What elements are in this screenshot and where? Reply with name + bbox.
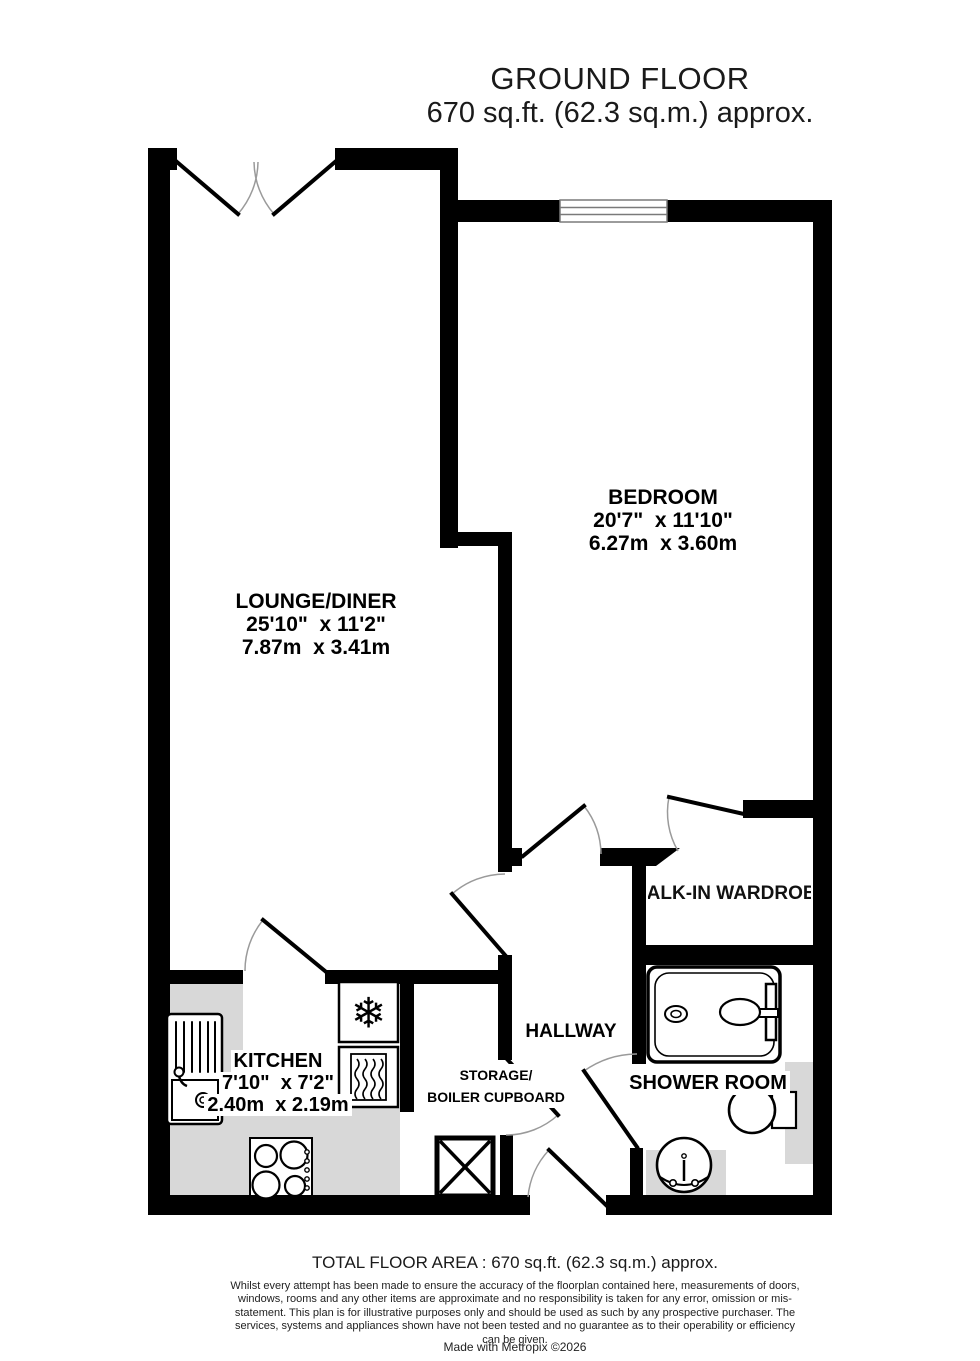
boiler-icon	[437, 1138, 493, 1196]
kitchen-door-leaf	[263, 920, 325, 971]
fridge-icon: ❄	[339, 982, 398, 1042]
total-floor-area: TOTAL FLOOR AREA : 670 sq.ft. (62.3 sq.m…	[175, 1253, 855, 1273]
bedroom-label: BEDROOM 20'7" x 11'10" 6.27m x 3.60m	[513, 486, 813, 555]
wardrobe-door-leaf	[669, 797, 744, 814]
entrance-double-door-right-leaf	[274, 162, 335, 214]
floorplan-page: GROUND FLOOR 670 sq.ft. (62.3 sq.m.) app…	[0, 0, 980, 1361]
storage-label: STORAGE/ BOILER CUPBOARD	[396, 1064, 596, 1108]
front-door-leaf	[549, 1150, 606, 1205]
hob-icon	[250, 1138, 312, 1199]
kitchen-dims-imperial: 7'10" x 7'2"	[219, 1072, 337, 1094]
storage-name-line1: STORAGE/	[457, 1064, 536, 1086]
lounge-hall-door-leaf	[452, 894, 505, 955]
disclaimer-text: Whilst every attempt has been made to en…	[225, 1280, 805, 1347]
hallway-name: HALLWAY	[522, 1021, 619, 1043]
lounge-label: LOUNGE/DINER 25'10" x 11'2" 7.87m x 3.41…	[166, 590, 466, 659]
bedroom-dims-imperial: 20'7" x 11'10"	[590, 509, 736, 532]
lounge-name: LOUNGE/DINER	[232, 590, 399, 613]
lounge-dims-imperial: 25'10" x 11'2"	[243, 613, 389, 636]
shower-room-name: SHOWER ROOM	[626, 1071, 790, 1095]
metropix-credit: Made with Metropix ©2026	[225, 1340, 805, 1354]
entrance-double-door-left-leaf	[177, 162, 238, 214]
bedroom-dims-metric: 6.27m x 3.60m	[586, 532, 740, 555]
wardrobe-name: WALK-IN WARDROBE	[648, 883, 811, 905]
kitchen-label: KITCHEN 7'10" x 7'2" 2.40m x 2.19m	[128, 1050, 428, 1116]
shower-room-label: SHOWER ROOM	[593, 1071, 823, 1095]
hallway-label: HALLWAY	[471, 1021, 671, 1043]
bedroom-window	[560, 200, 667, 222]
bedroom-name: BEDROOM	[605, 486, 721, 509]
storage-name-line2: BOILER CUPBOARD	[424, 1086, 568, 1108]
bedroom-door-leaf	[523, 806, 584, 856]
lounge-dims-metric: 7.87m x 3.41m	[239, 636, 393, 659]
snowflake-icon: ❄	[351, 989, 386, 1038]
kitchen-name: KITCHEN	[231, 1050, 326, 1072]
shower-enclosure-icon	[648, 967, 780, 1062]
kitchen-dims-metric: 2.40m x 2.19m	[204, 1094, 351, 1116]
wardrobe-label: WALK-IN WARDROBE	[648, 881, 811, 906]
basin-icon	[657, 1138, 711, 1192]
floorplan-drawing: ❄	[0, 0, 980, 1361]
